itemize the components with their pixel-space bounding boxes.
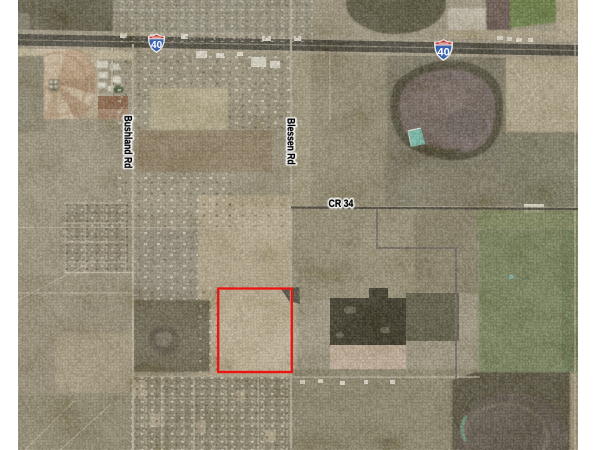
svg-text:40: 40 — [151, 40, 163, 51]
svg-text:CR 34: CR 34 — [329, 198, 354, 210]
svg-text:40: 40 — [437, 47, 449, 59]
svg-text:Bushland Rd: Bushland Rd — [121, 116, 133, 169]
svg-text:Blessen Rd: Blessen Rd — [284, 118, 296, 165]
